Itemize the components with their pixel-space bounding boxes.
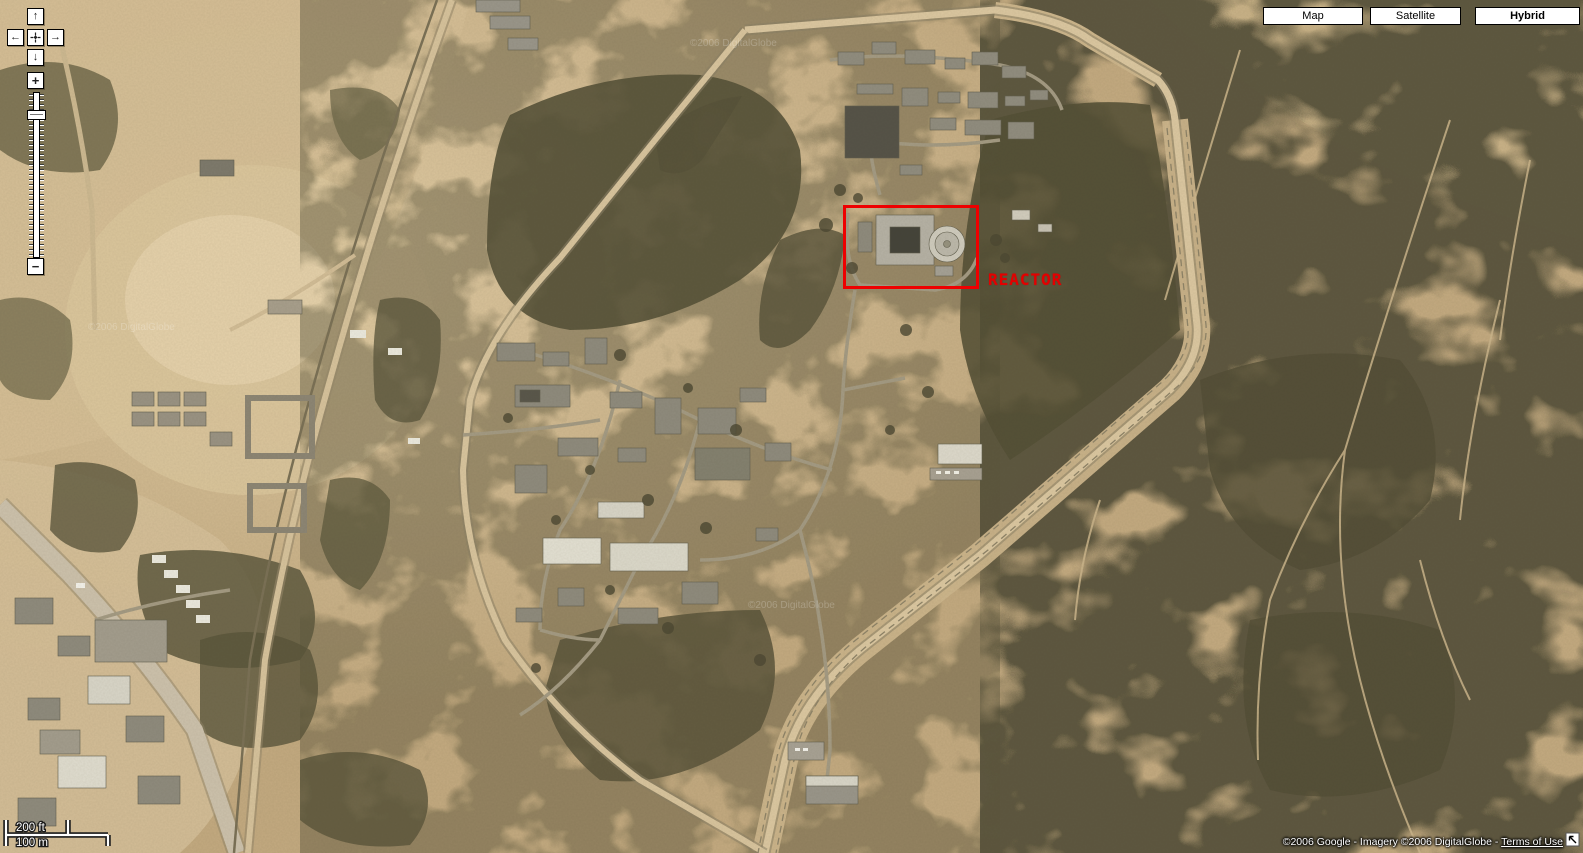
scale-imperial-label: 200 ft (16, 822, 46, 834)
arrow-left-icon: ← (10, 32, 21, 43)
zoom-slider[interactable] (27, 92, 46, 258)
grain-overlay (0, 0, 1583, 853)
copyright-text: ©2006 Google - Imagery ©2006 DigitalGlob… (1283, 836, 1501, 848)
plus-icon: + (32, 74, 40, 87)
pan-center-button[interactable] (27, 29, 44, 46)
zoom-slider-handle[interactable] (27, 110, 46, 120)
satellite-button[interactable]: Satellite (1370, 7, 1461, 25)
google-maps-window: ©2006 DigitalGlobe ©2006 DigitalGlobe ©2… (0, 0, 1583, 853)
zoom-in-button[interactable]: + (27, 72, 44, 89)
terms-of-use-link[interactable]: Terms of Use (1501, 836, 1563, 848)
pan-up-button[interactable]: ↑ (27, 8, 44, 25)
pan-left-button[interactable]: ← (7, 29, 24, 46)
minus-icon: − (32, 260, 40, 273)
zoom-out-button[interactable]: − (27, 258, 44, 275)
scale-bar: 200 ft 100 m (2, 812, 127, 852)
arrow-up-icon: ↑ (33, 11, 39, 22)
satellite-map[interactable] (0, 0, 1583, 853)
pan-down-button[interactable]: ↓ (27, 49, 44, 66)
attribution: ©2006 Google - Imagery ©2006 DigitalGlob… (1283, 836, 1563, 848)
map-button[interactable]: Map (1263, 7, 1363, 25)
reactor-annotation-label: REACTOR (988, 270, 1062, 289)
hybrid-button[interactable]: Hybrid (1475, 7, 1580, 25)
arrow-down-icon: ↓ (33, 52, 39, 63)
mouse-cursor-icon (1565, 832, 1580, 847)
pan-center-icon (30, 32, 41, 43)
arrow-right-icon: → (50, 32, 61, 43)
scale-metric-label: 100 m (16, 837, 48, 849)
pan-right-button[interactable]: → (47, 29, 64, 46)
